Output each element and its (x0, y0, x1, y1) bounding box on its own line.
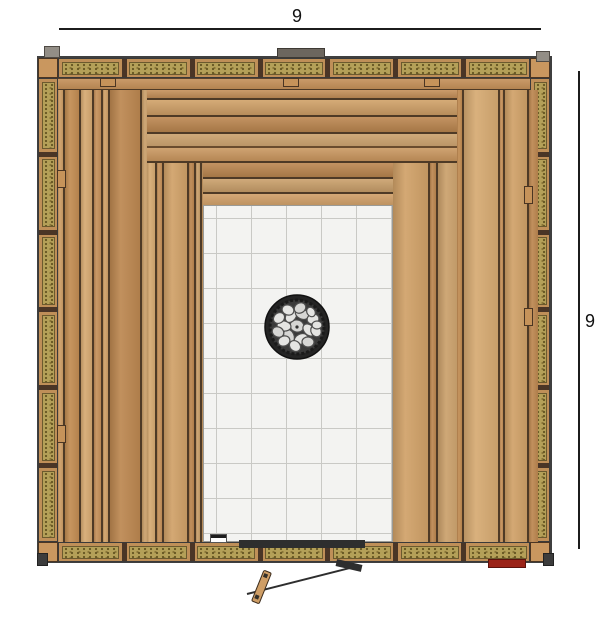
wall-stud (393, 59, 398, 77)
wood-plank (92, 90, 101, 542)
wall-top (58, 58, 530, 78)
insulation-batt (333, 62, 391, 75)
insulation-batt (42, 82, 55, 150)
wood-plank (63, 90, 79, 542)
bench-slat (147, 98, 457, 115)
bench-slat (147, 115, 457, 132)
wood-plank (428, 163, 436, 542)
frame-notch (283, 78, 299, 87)
frame-notch (424, 78, 440, 87)
wood-plank (147, 163, 155, 542)
roof-vent-tab (277, 48, 325, 58)
corner-cap-right (536, 51, 550, 62)
wood-plank (187, 163, 194, 542)
wood-plank (393, 163, 428, 542)
bench-panel-left (58, 90, 147, 542)
bench-panel-right (457, 90, 530, 542)
insulation-batt (401, 62, 459, 75)
bench-slat (147, 90, 457, 98)
wall-block (524, 186, 533, 204)
wall-stud (190, 59, 195, 77)
insulation-batt (62, 546, 120, 559)
bench-edge-plank (147, 146, 457, 163)
wall-stud (39, 152, 57, 157)
wall-left (38, 78, 58, 542)
wall-stud (39, 230, 57, 235)
floor-drain-grate (211, 535, 226, 538)
wall-block (57, 425, 66, 443)
wall-stud (39, 463, 57, 468)
wall-stud (393, 543, 398, 561)
bench-panel-left-inner (147, 163, 203, 542)
wall-stud (39, 385, 57, 390)
red-marker (488, 559, 526, 568)
wall-stud (122, 543, 127, 561)
corner-cap-left (44, 46, 60, 58)
wood-plank (162, 163, 187, 542)
building-plan (0, 0, 600, 619)
wood-plank (155, 163, 162, 542)
upper-bench (147, 90, 457, 146)
insulation-batt (129, 62, 187, 75)
wood-plank (462, 90, 498, 542)
wood-plank (108, 90, 140, 542)
sauna-floor-plan: 9 9 (0, 0, 600, 619)
insulation-batt (469, 62, 527, 75)
wall-stud (258, 59, 263, 77)
insulation-batt (129, 546, 187, 559)
wall-stud (461, 543, 466, 561)
wood-plank (79, 90, 92, 542)
insulation-batt (42, 159, 55, 227)
wall-stud (461, 59, 466, 77)
door-threshold (239, 540, 365, 548)
lower-bench (203, 163, 393, 205)
heater-stone (302, 336, 315, 347)
sauna-heater-icon (261, 291, 333, 363)
insulation-batt (42, 315, 55, 383)
insulation-batt (197, 62, 255, 75)
floor-drain (210, 534, 227, 543)
bench-slat (203, 177, 393, 192)
frame-notch (100, 78, 116, 87)
corner-foot-left (37, 553, 48, 566)
insulation-batt (401, 546, 459, 559)
insulation-batt (469, 546, 527, 559)
corner-post (38, 58, 58, 78)
door-handle-screw (254, 594, 259, 599)
bench-panel-right-inner (393, 163, 457, 542)
wall-stud (190, 543, 195, 561)
wall-stud (122, 59, 127, 77)
wall-stud (325, 59, 330, 77)
wall-block (57, 170, 66, 188)
door-handle-screw (263, 573, 268, 578)
corner-foot-right (543, 553, 554, 566)
wall-block (524, 308, 533, 326)
tile-floor (203, 205, 393, 542)
wall-stud (39, 307, 57, 312)
heater-stone (312, 321, 322, 329)
wood-plank (101, 90, 108, 542)
insulation-batt (62, 62, 120, 75)
insulation-batt (42, 393, 55, 461)
bench-slat (203, 163, 393, 177)
insulation-batt (42, 471, 55, 539)
insulation-batt (42, 237, 55, 305)
insulation-batt (265, 62, 323, 75)
